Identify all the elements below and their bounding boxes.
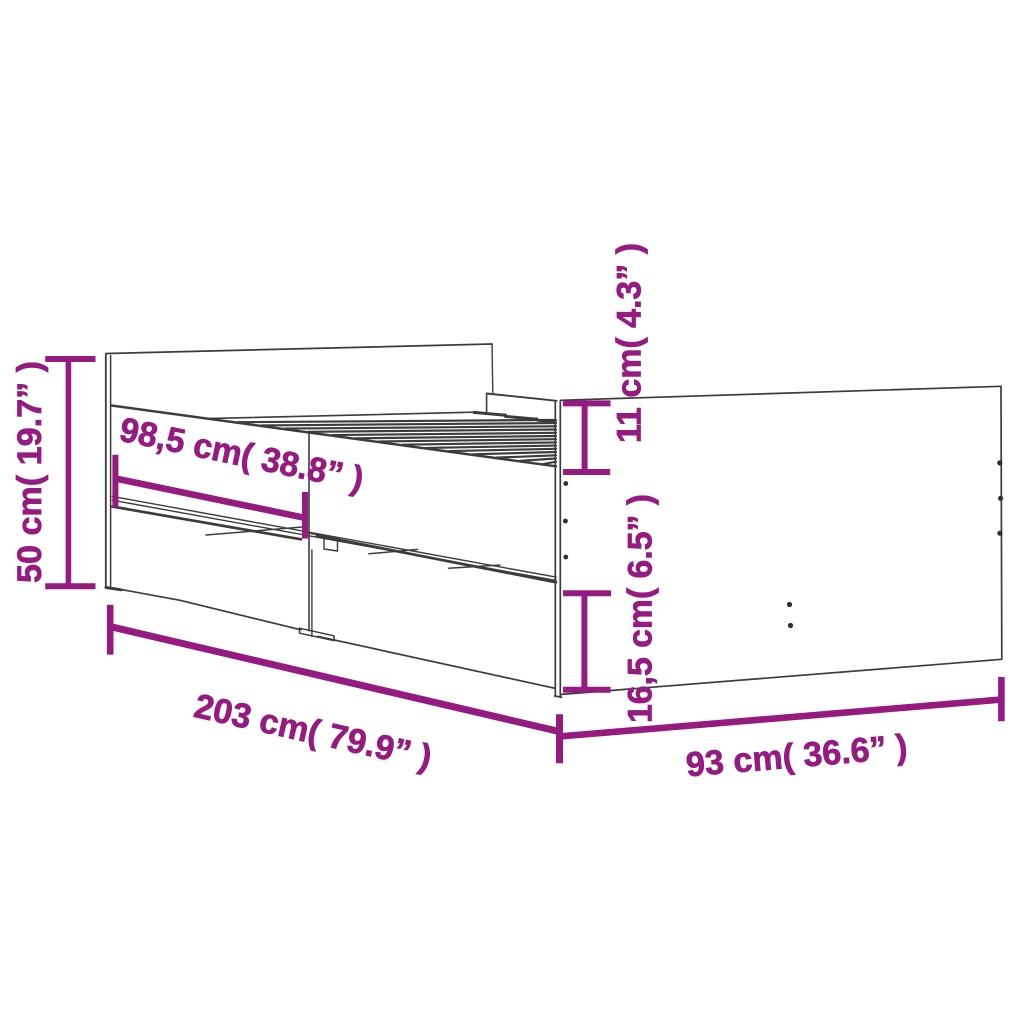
svg-text:11 cm( 4.3” ): 11 cm( 4.3” ) [611,243,649,443]
svg-text:16,5 cm( 6.5” ): 16,5 cm( 6.5” ) [622,494,660,723]
svg-text:50 cm( 19.7” ): 50 cm( 19.7” ) [11,361,49,583]
